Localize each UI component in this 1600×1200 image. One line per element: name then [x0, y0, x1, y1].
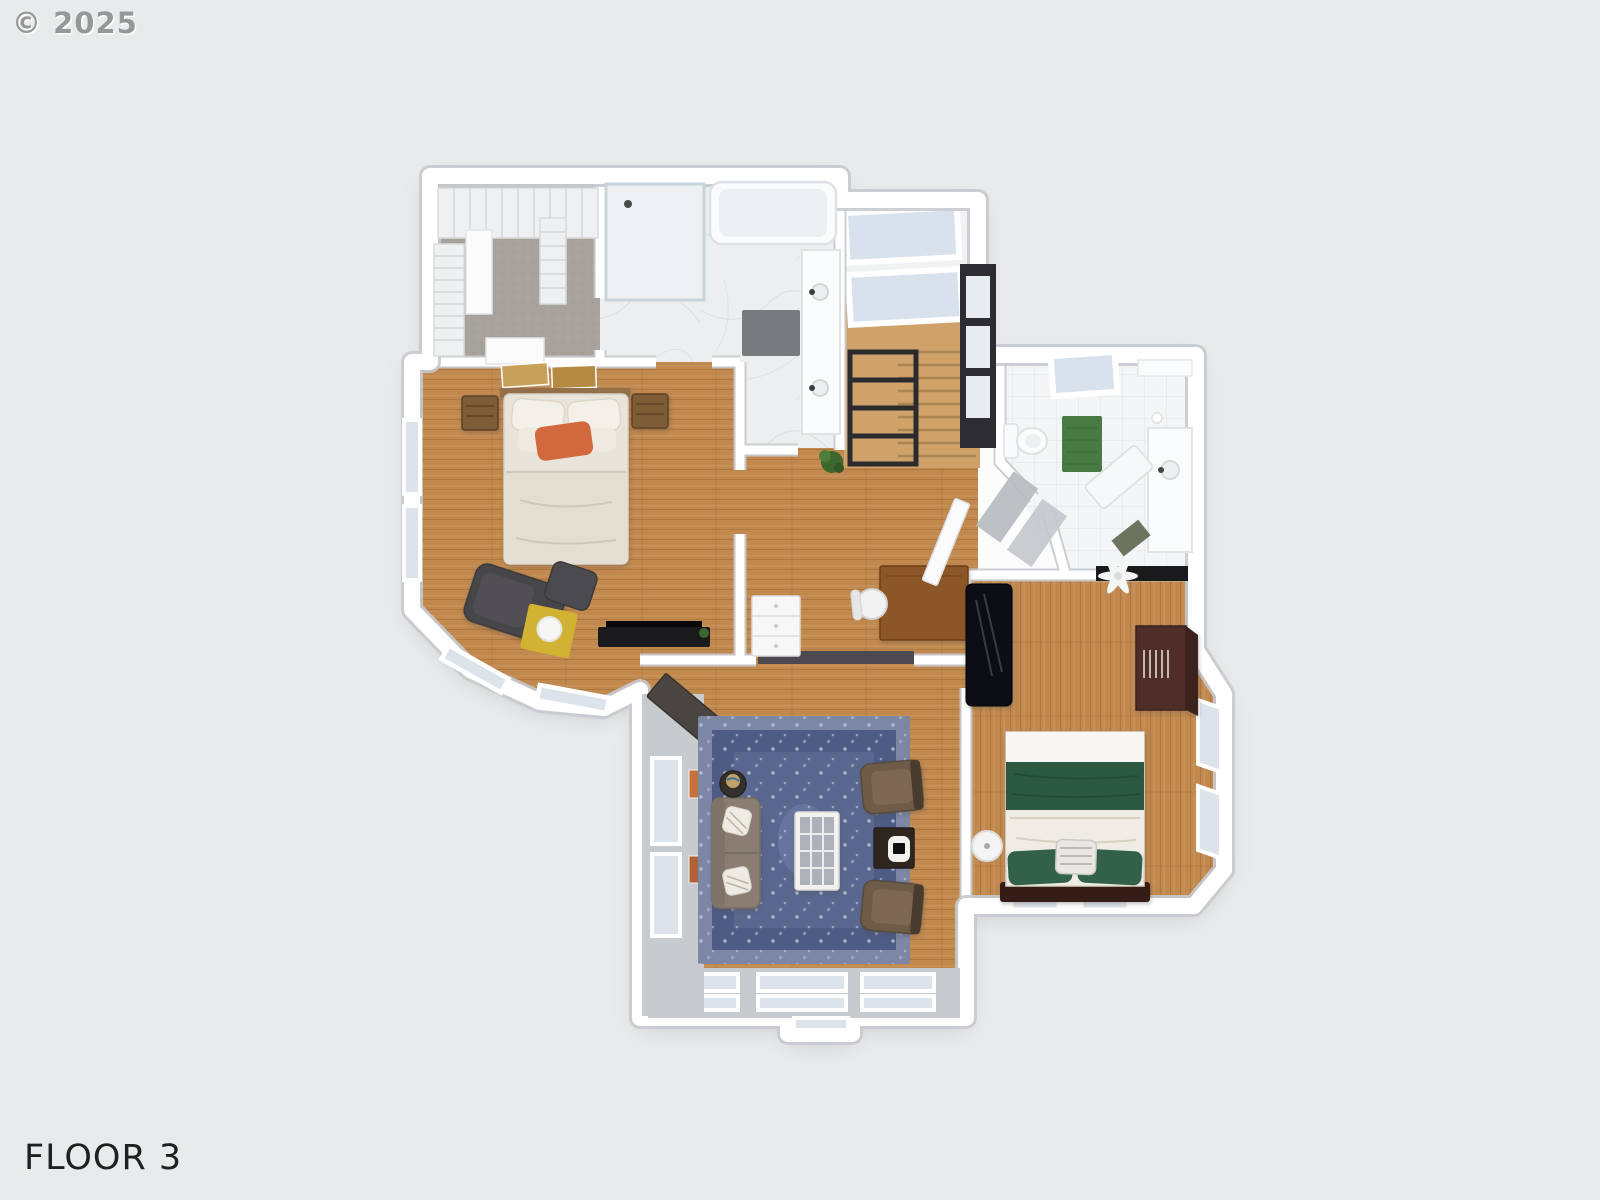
floorplan-render: © 2025 FLOOR 3 — [0, 0, 1600, 1200]
side-table-dark — [874, 828, 914, 868]
media-console — [598, 621, 710, 647]
shower-head — [624, 200, 632, 208]
bay-bump-window — [794, 1018, 848, 1030]
counter — [1138, 360, 1192, 376]
wardrobe — [1136, 626, 1198, 716]
globe-side-table — [720, 771, 746, 797]
sofa — [712, 798, 760, 908]
floor-label: FLOOR 3 — [24, 1138, 182, 1178]
floorplan-3d — [0, 0, 1600, 1200]
armchair — [860, 759, 924, 814]
vanity2 — [1148, 428, 1192, 552]
armchair — [860, 879, 924, 934]
shower — [606, 184, 704, 300]
copyright-watermark: © 2025 — [12, 6, 138, 40]
wall-art — [501, 362, 548, 387]
bed-2 — [1000, 732, 1150, 902]
bath-mat-gray — [742, 310, 800, 356]
accent-pillow-knit — [1055, 839, 1096, 874]
stairwell-window-wall — [960, 264, 996, 448]
wall-art — [552, 365, 597, 389]
white-dresser — [752, 596, 800, 656]
floor-plan — [404, 176, 1224, 1034]
double-vanity — [802, 250, 840, 434]
round-side-table — [972, 831, 1002, 861]
piano — [966, 584, 1012, 706]
coffee-table — [795, 812, 839, 890]
desk-chair — [850, 589, 887, 620]
